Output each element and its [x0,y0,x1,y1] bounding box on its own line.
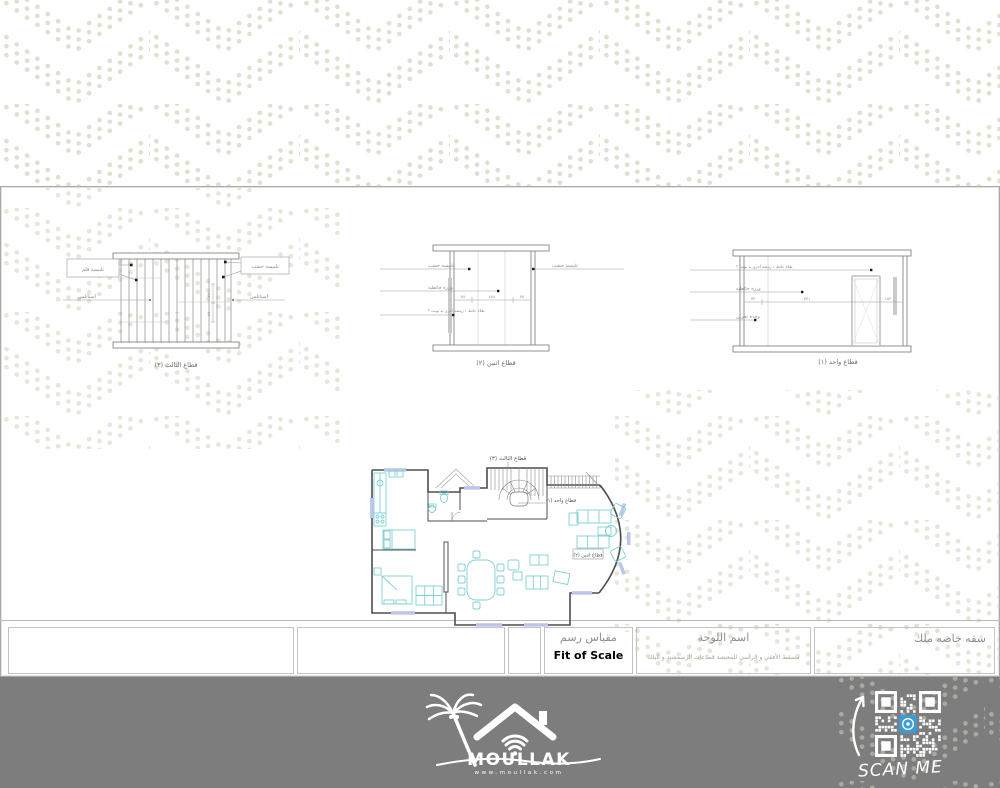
door-elevation [852,276,880,346]
label-right: تلبيسة خشب [251,264,279,270]
bottom-cap [113,342,239,348]
stair-newel [510,492,528,506]
dim-right: ٧٨ [520,294,525,299]
plan-windows [370,468,631,627]
plan-label-stairs: قطاع واحد (١) [546,498,577,504]
dim-right: ١٥٣ [885,296,892,301]
scan-arrow-icon [847,689,875,761]
qr-code [875,691,941,757]
dim-mid: ٧٧١ [804,296,810,301]
bottom-cap [733,346,911,352]
plan-furniture [374,471,626,609]
floor-plan: قطاع الثالث (٣) قطاع واحد (١) قطاع اثنين… [358,450,650,630]
section-3-caption: قطاع الثالث (٣) [154,361,197,369]
brand-wordmark: MOULLAK [467,750,571,770]
top-cap [733,250,911,256]
pattern-top-strip [0,0,1000,187]
qr-center-app-icon [899,715,917,733]
section-detail-1: طلاء حائط ١ ريتشه أخرى بد بونت ؟ وزرة حا… [688,242,928,372]
section-detail-2: تلبيسة خشب وزرة حائطية طلاء حائط ١ ريتشه… [378,238,630,372]
dim-a: ٢٨ [206,292,211,297]
section-detail-3: تلبيسة قلم استانلس تلبيسة خشب استانلس ٢٨… [55,246,295,378]
brand-website: www.moullak.com [474,770,563,776]
leader-dot [224,261,227,264]
leader-dot [135,279,138,282]
label-2: وزرة حائطية [736,286,761,292]
dim-left: ٧٣ [751,296,756,301]
label-left: تلبيسة قلم [82,267,105,273]
label-right: تلبيسة خشب [552,263,579,269]
section-1-caption: قطاع واحد (١) [818,358,857,366]
moullak-logo: MOULLAK www.moullak.com [415,687,615,782]
bottom-cap [433,345,549,351]
wall-panel-shading [893,277,897,315]
dim-left: ٧٨ [461,294,466,299]
slats [121,259,231,342]
dim-b: ٤٨ [206,311,211,316]
plan-label-top: قطاع الثالث (٣) [490,456,527,462]
footer-bar: MOULLAK www.moullak.com [0,677,1000,788]
leader-dot [222,276,225,279]
drawing-sheet: تلبيسة قلم استانلس تلبيسة خشب استانلس ٢٨… [0,0,1000,788]
canopy-lines [436,469,476,488]
label-left-2: استانلس [78,294,96,300]
top-cap [433,245,549,251]
dim-mid: ٤٨٤ [489,294,495,299]
house-roof-icon [477,707,553,737]
label-3: طلاء حائط ١ ريتشه أخرى بد بونت ؟ [428,308,485,313]
label-1: طلاء حائط ١ ريتشه أخرى بد بونت ؟ [736,264,793,269]
label-1: تلبيسة خشب [428,263,455,269]
partition-wall [444,542,448,592]
top-cap [113,253,239,259]
label-right-2: استانلس [250,294,268,300]
leader-dot [130,264,133,267]
plan-walls [372,468,621,625]
plan-label-right: قطاع اثنين (٢) [573,553,602,559]
section-2-caption: قطاع اثنين (٢) [476,359,516,367]
label-2: وزرة حائطية [428,285,453,291]
